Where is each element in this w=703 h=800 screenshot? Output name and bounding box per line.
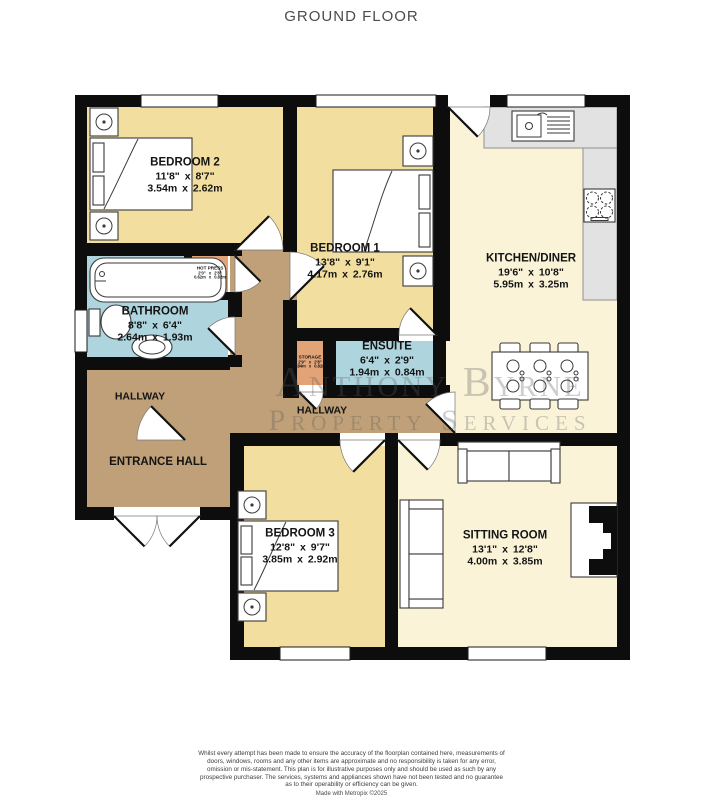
window — [280, 647, 350, 660]
room-name: BEDROOM 2 — [147, 157, 222, 171]
window — [75, 310, 87, 352]
label-hallway-center: HALLWAY — [297, 405, 347, 418]
room-dims-imperial: 19'6" x 10'8" — [486, 266, 576, 279]
sofa-back — [458, 442, 560, 451]
room-dims-metric: 1.94m x 0.84m — [349, 367, 424, 380]
room-dims-imperial: 6'4" x 2'9" — [349, 354, 424, 367]
window — [141, 95, 218, 107]
window — [507, 95, 585, 107]
label-kitchen-diner: KITCHEN/DINER 19'6" x 10'8" 5.95m x 3.25… — [486, 253, 576, 292]
footer: Whilst every attempt has been made to en… — [197, 750, 507, 797]
room-dims-imperial: 11'8" x 8'7" — [147, 170, 222, 183]
double-bed — [333, 170, 433, 252]
label-bathroom: BATHROOM 8'8" x 6'4" 2.64m x 1.93m — [117, 306, 192, 345]
sofa-back — [400, 500, 409, 608]
label-sitting-room: SITTING ROOM 13'1" x 12'8" 4.00m x 3.85m — [463, 530, 547, 569]
room-dims-metric: 3.85m x 2.92m — [262, 554, 337, 567]
label-bedroom-3: BEDROOM 3 12'8" x 9'7" 3.85m x 2.92m — [262, 528, 337, 567]
sofa-cushion — [509, 451, 551, 481]
sofa-arm — [551, 449, 560, 483]
window — [316, 95, 436, 107]
room-name: ENSUITE — [349, 341, 424, 355]
dining-table — [492, 352, 588, 400]
label-storage: STORAGE 2'9" x 2'8" 0.84m x 0.82m — [294, 354, 326, 369]
room-name: SITTING ROOM — [463, 530, 547, 544]
sofa-cushion — [467, 451, 509, 481]
sofa-arm — [409, 599, 443, 608]
sofa-cushion — [409, 509, 443, 554]
room-dims-metric: 0.62m x 0.82m — [194, 276, 226, 281]
room-name: ENTRANCE HALL — [109, 456, 207, 470]
pillow — [93, 143, 104, 172]
room-dims-metric: 4.17m x 2.76m — [307, 269, 382, 282]
pillow — [419, 213, 430, 247]
dining-chair — [530, 399, 550, 409]
room-name: BATHROOM — [117, 306, 192, 320]
sofa-arm — [458, 449, 467, 483]
credit-text: Made with Metropix ©2025 — [197, 791, 507, 797]
room-dims-metric: 3.54m x 2.62m — [147, 183, 222, 196]
room-name: BEDROOM 1 — [307, 243, 382, 257]
label-entrance-hall: ENTRANCE HALL — [109, 456, 207, 470]
dining-set — [492, 343, 588, 409]
label-hot-press: HOT PRESS 2'0" x 2'8" 0.62m x 0.82m — [194, 265, 226, 280]
pillow — [241, 526, 252, 554]
page-title: GROUND FLOOR — [0, 8, 703, 25]
label-bedroom-2: BEDROOM 2 11'8" x 8'7" 3.54m x 2.62m — [147, 157, 222, 196]
floor-plan — [0, 0, 703, 800]
dining-chair — [500, 399, 520, 409]
room-name: KITCHEN/DINER — [486, 253, 576, 267]
disclaimer-text: Whilst every attempt has been made to en… — [197, 750, 507, 789]
window — [468, 647, 546, 660]
room-dims-imperial: 12'8" x 9'7" — [262, 541, 337, 554]
label-hallway-west: HALLWAY — [115, 391, 165, 404]
room-dims-metric: 4.00m x 3.85m — [463, 556, 547, 569]
room-dims-metric: 2.64m x 1.93m — [117, 332, 192, 345]
room-dims-imperial: 8'8" x 6'4" — [117, 319, 192, 332]
pillow — [419, 175, 430, 209]
label-ensuite: ENSUITE 6'4" x 2'9" 1.94m x 0.84m — [349, 341, 424, 380]
pillow — [93, 176, 104, 205]
floorplan-page: GROUND FLOOR — [0, 0, 703, 800]
room-name: HALLWAY — [297, 405, 347, 418]
toilet-cistern — [89, 309, 100, 336]
room-name: HALLWAY — [115, 391, 165, 404]
room-dims-metric: 5.95m x 3.25m — [486, 279, 576, 292]
room-dims-imperial: 13'8" x 9'1" — [307, 256, 382, 269]
sofa-arm — [409, 500, 443, 509]
pillow — [241, 557, 252, 585]
sofa-cushion — [409, 554, 443, 599]
label-bedroom-1: BEDROOM 1 13'8" x 9'1" 4.17m x 2.76m — [307, 243, 382, 282]
room-name: BEDROOM 3 — [262, 528, 337, 542]
dining-chair — [558, 399, 578, 409]
room-dims-imperial: 13'1" x 12'8" — [463, 543, 547, 556]
room-dims-metric: 0.84m x 0.82m — [294, 365, 326, 370]
